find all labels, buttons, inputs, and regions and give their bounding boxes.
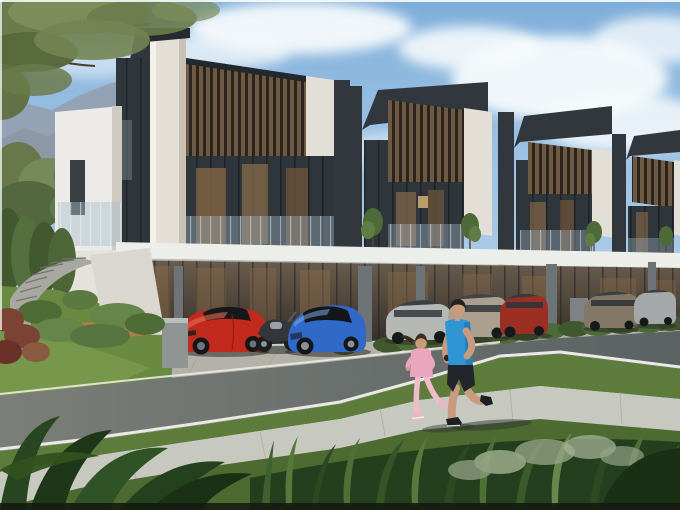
man-shoe-sole [447,426,460,427]
townhouse-unit-4 [612,130,680,270]
wheel-rim [250,341,257,348]
red-shrub [22,342,50,362]
wheel-rim [348,341,355,348]
fuel-tank [270,322,282,329]
window-band [506,302,543,308]
wheel [392,332,404,344]
wood-slat-screen-unit-2 [388,100,464,192]
girl-front-leg [416,377,418,413]
party-wall-fin [498,112,514,266]
wood-slat-screen-unit-4 [632,156,674,208]
wheel [625,321,634,330]
wheel [664,317,672,325]
frame-border-left [0,0,2,330]
wheel [640,318,649,327]
concrete-pillar [162,318,188,368]
window-band [591,300,635,306]
frame-border-top [0,0,680,2]
girl-hand [406,367,410,371]
party-wall-fin [348,86,362,262]
wheel [534,326,544,336]
wheel-rim [197,342,205,350]
wheel [590,321,600,331]
concrete-pillar-top [162,318,188,323]
wheel-rim [301,342,309,350]
bottom-vignette [0,503,680,510]
marble-wall-unit-4 [674,160,680,236]
wheel-rim [261,341,267,347]
render-canvas [0,0,680,510]
bronze-sedan [583,292,639,333]
silver-suv [633,290,677,329]
wood-slat-screen-unit-3 [528,142,592,202]
wall-art [418,196,428,208]
girl-hoodie [410,348,433,377]
party-wall-fin [612,134,626,270]
window-band [394,310,442,317]
townhouse-render-image [0,0,680,510]
wheel [505,327,516,338]
man-front-leg [452,388,456,420]
cloud [398,26,542,70]
man-neck [455,316,460,321]
party-wall-fin [334,80,350,262]
